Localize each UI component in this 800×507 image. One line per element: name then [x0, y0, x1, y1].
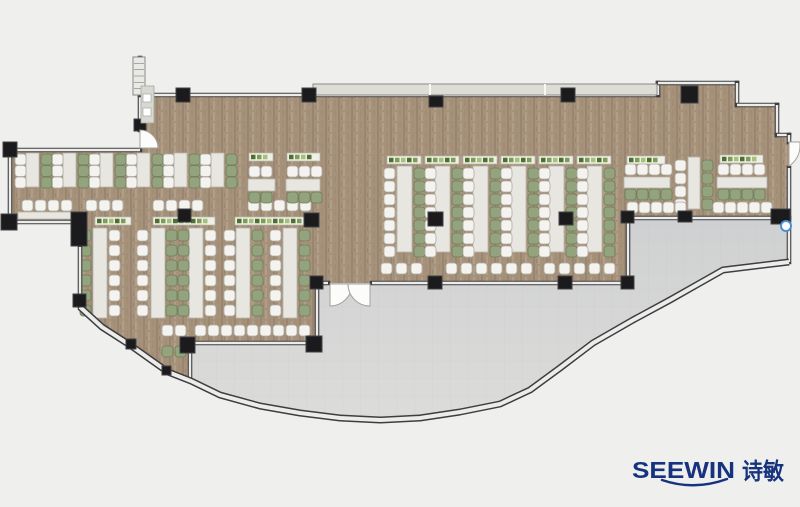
column — [180, 337, 195, 353]
column — [428, 212, 443, 226]
plant-icon — [301, 155, 306, 160]
chair — [381, 263, 392, 274]
chair — [730, 164, 741, 175]
chair-green — [528, 168, 539, 179]
chair-green — [252, 245, 263, 256]
chair-green — [649, 189, 660, 200]
chair — [384, 194, 395, 205]
table — [549, 166, 564, 252]
chair — [577, 246, 588, 257]
chair-green — [414, 207, 425, 218]
chair — [89, 166, 100, 177]
column — [304, 213, 319, 227]
plant-icon — [291, 219, 296, 224]
chair — [109, 230, 120, 241]
plant-icon — [279, 219, 284, 224]
chair — [166, 200, 177, 211]
chair-green — [528, 220, 539, 231]
chair — [137, 290, 148, 301]
chair-green — [490, 168, 501, 179]
chair-green — [661, 189, 672, 200]
panel-switch — [143, 94, 151, 102]
chair — [22, 200, 33, 211]
chair — [273, 325, 284, 336]
plant-icon — [249, 219, 254, 224]
chair — [221, 325, 232, 336]
plant-icon — [243, 219, 248, 224]
column — [3, 142, 17, 157]
chair-green — [252, 305, 263, 316]
plant-icon — [653, 158, 658, 163]
chair — [153, 200, 164, 211]
chair — [501, 246, 512, 257]
chair — [192, 200, 203, 211]
chair-green — [604, 168, 615, 179]
plant-icon — [413, 158, 418, 163]
chair-green — [452, 233, 463, 244]
chair — [109, 290, 120, 301]
chair — [718, 164, 729, 175]
table — [100, 153, 113, 187]
chair — [260, 325, 271, 336]
chair — [89, 154, 100, 165]
chair-green — [252, 260, 263, 271]
chair — [411, 263, 422, 274]
plant-icon — [197, 219, 202, 224]
column — [559, 212, 573, 225]
chair-green — [226, 166, 237, 177]
panel-switch — [143, 108, 151, 116]
chair — [15, 177, 26, 188]
chair-green — [490, 220, 501, 231]
chair — [539, 181, 550, 192]
plant-icon — [503, 158, 508, 163]
chair-green — [178, 290, 189, 301]
chair — [384, 220, 395, 231]
chair-green — [299, 192, 310, 203]
chair — [604, 263, 615, 274]
chair — [425, 194, 436, 205]
chair — [109, 260, 120, 271]
plant-icon — [635, 158, 640, 163]
table — [397, 166, 412, 252]
chair — [205, 245, 216, 256]
table — [236, 228, 250, 318]
floor-plan-svg: SEEWIN 诗敏 — [0, 0, 800, 507]
chair — [205, 305, 216, 316]
chair — [506, 263, 517, 274]
chair — [224, 305, 235, 316]
chair-green — [299, 290, 310, 301]
plant-icon — [103, 219, 108, 224]
chair — [126, 154, 137, 165]
service-panel — [141, 86, 154, 123]
chair — [224, 275, 235, 286]
plant-icon — [251, 155, 256, 160]
chair — [261, 166, 272, 177]
chair-green — [702, 199, 713, 210]
chair — [247, 325, 258, 336]
chair — [754, 164, 765, 175]
plant-icon — [389, 158, 394, 163]
table — [63, 153, 76, 187]
chair — [577, 220, 588, 231]
plant-icon — [263, 155, 268, 160]
chair-green — [189, 166, 200, 177]
chair-green — [299, 230, 310, 241]
plant-icon — [255, 219, 260, 224]
plant-icon — [483, 158, 488, 163]
plant-icon — [261, 219, 266, 224]
plant-icon — [445, 158, 450, 163]
plant-icon — [237, 219, 242, 224]
chair — [61, 200, 72, 211]
chair — [491, 263, 502, 274]
chair — [224, 245, 235, 256]
chair — [425, 233, 436, 244]
column — [176, 88, 190, 102]
plant-icon — [734, 157, 739, 162]
chair — [224, 290, 235, 301]
plant-icon — [647, 158, 652, 163]
chair-green — [299, 305, 310, 316]
chair — [311, 166, 322, 177]
plant-icon — [752, 157, 757, 162]
table — [283, 228, 297, 318]
chair-green — [566, 233, 577, 244]
chair-green — [742, 189, 753, 200]
plant-icon — [559, 158, 564, 163]
chair — [446, 263, 457, 274]
plant-icon — [740, 157, 745, 162]
chair — [299, 325, 310, 336]
chair — [200, 177, 211, 188]
column — [302, 88, 316, 102]
chair — [249, 166, 260, 177]
chair-green — [166, 275, 177, 286]
chair-green — [178, 305, 189, 316]
chair — [205, 260, 216, 271]
column — [71, 212, 87, 246]
plant-icon — [297, 219, 302, 224]
chair-green — [604, 246, 615, 257]
chair — [86, 200, 97, 211]
chair — [126, 177, 137, 188]
table — [211, 153, 224, 187]
chair — [577, 168, 588, 179]
column — [558, 276, 572, 289]
chair — [274, 200, 285, 211]
chair-green — [452, 207, 463, 218]
chair — [205, 290, 216, 301]
plant-icon — [289, 155, 294, 160]
chair — [501, 181, 512, 192]
chair-green — [490, 233, 501, 244]
chair — [463, 246, 474, 257]
chair — [737, 202, 748, 213]
plant-icon — [433, 158, 438, 163]
chair-green — [115, 166, 126, 177]
chair-green — [115, 177, 126, 188]
plant-icon — [109, 219, 114, 224]
chair — [175, 325, 186, 336]
chair — [463, 194, 474, 205]
chair — [559, 263, 570, 274]
chair — [15, 166, 26, 177]
table — [688, 157, 700, 209]
chair-green — [41, 154, 52, 165]
chair — [463, 207, 474, 218]
chair-green — [490, 194, 501, 205]
chair — [384, 233, 395, 244]
chair-green — [604, 220, 615, 231]
chair — [205, 275, 216, 286]
logo-latin-text: SEEWIN — [632, 457, 735, 483]
chair — [476, 263, 487, 274]
chair-green — [566, 181, 577, 192]
plant-icon — [267, 219, 272, 224]
column — [310, 276, 323, 289]
chair-green — [249, 192, 260, 203]
chair — [286, 325, 297, 336]
column — [621, 276, 634, 289]
fixture-marker-icon — [781, 221, 791, 231]
plant-icon — [439, 158, 444, 163]
plant-icon — [597, 158, 602, 163]
chair-green — [41, 177, 52, 188]
chair — [577, 181, 588, 192]
chair — [501, 233, 512, 244]
chair — [270, 230, 281, 241]
chair-green — [166, 245, 177, 256]
chair-green — [311, 192, 322, 203]
chair — [651, 202, 662, 213]
floorplan-canvas: SEEWIN 诗敏 — [0, 0, 800, 507]
chair — [137, 245, 148, 256]
plant-icon — [565, 158, 570, 163]
chair — [109, 245, 120, 256]
chair — [126, 166, 137, 177]
chair-green — [604, 207, 615, 218]
column — [561, 88, 575, 102]
chair — [589, 263, 600, 274]
chair — [501, 168, 512, 179]
column — [306, 336, 322, 352]
chair — [663, 202, 674, 213]
chair — [287, 166, 298, 177]
plant-icon — [509, 158, 514, 163]
chair-green — [178, 245, 189, 256]
chair — [639, 202, 650, 213]
plant-icon — [191, 219, 196, 224]
chair — [137, 230, 148, 241]
chair-green — [226, 154, 237, 165]
plant-icon — [515, 158, 520, 163]
plant-icon — [541, 158, 546, 163]
chair-green — [637, 189, 648, 200]
chair — [625, 164, 636, 175]
chair — [48, 200, 59, 211]
chair — [35, 200, 46, 211]
chair — [675, 160, 686, 171]
plant-icon — [167, 219, 172, 224]
chair — [163, 177, 174, 188]
chair-green — [528, 194, 539, 205]
plant-icon — [407, 158, 412, 163]
table — [137, 153, 150, 187]
chair-green — [566, 168, 577, 179]
table — [717, 177, 767, 188]
door — [789, 142, 800, 166]
chair — [384, 181, 395, 192]
plant-icon — [746, 157, 751, 162]
chair — [713, 202, 724, 213]
plant-icon — [465, 158, 470, 163]
chair-green — [78, 177, 89, 188]
chair — [742, 164, 753, 175]
chair-green — [528, 207, 539, 218]
table — [587, 166, 602, 252]
table — [435, 166, 450, 252]
table — [151, 228, 165, 318]
chair-green — [566, 194, 577, 205]
chair — [200, 166, 211, 177]
chair — [461, 263, 472, 274]
chair-green — [414, 220, 425, 231]
column — [1, 214, 17, 230]
plant-icon — [579, 158, 584, 163]
chair — [270, 305, 281, 316]
chair-green — [152, 166, 163, 177]
chair-green — [702, 173, 713, 184]
chair — [270, 260, 281, 271]
chair-green — [252, 230, 263, 241]
table — [511, 166, 526, 252]
column — [126, 339, 136, 349]
plant-icon — [547, 158, 552, 163]
plant-icon — [161, 219, 166, 224]
column — [678, 211, 692, 222]
column — [178, 209, 191, 222]
chair-green — [452, 168, 463, 179]
chair — [99, 200, 110, 211]
chair — [501, 207, 512, 218]
chair — [539, 220, 550, 231]
chair — [463, 168, 474, 179]
plant-icon — [585, 158, 590, 163]
table — [26, 153, 39, 187]
chair-green — [718, 189, 729, 200]
plant-icon — [401, 158, 406, 163]
plant-icon — [427, 158, 432, 163]
plant-icon — [395, 158, 400, 163]
table — [473, 166, 488, 252]
chair-green — [166, 260, 177, 271]
chair-green — [414, 233, 425, 244]
chair — [539, 194, 550, 205]
chair-green — [490, 246, 501, 257]
table — [286, 179, 320, 191]
chair-green — [528, 181, 539, 192]
chair-green — [226, 177, 237, 188]
chair — [521, 263, 532, 274]
chair-green — [528, 246, 539, 257]
column — [681, 86, 698, 103]
chair — [137, 275, 148, 286]
chair — [577, 207, 588, 218]
plant-icon — [285, 219, 290, 224]
chair-green — [115, 154, 126, 165]
chair-green — [452, 246, 463, 257]
plant-icon — [641, 158, 646, 163]
plant-icon — [173, 219, 178, 224]
chair — [637, 164, 648, 175]
plant-icon — [203, 219, 208, 224]
chair — [463, 181, 474, 192]
chair — [463, 233, 474, 244]
chair — [425, 168, 436, 179]
chair-green — [178, 275, 189, 286]
chair — [539, 233, 550, 244]
chair-green — [166, 230, 177, 241]
chair-green — [252, 275, 263, 286]
chair-green — [604, 233, 615, 244]
table — [248, 179, 275, 191]
plant-icon — [477, 158, 482, 163]
column — [621, 211, 634, 223]
chair-green — [625, 189, 636, 200]
chair — [137, 260, 148, 271]
chair — [675, 186, 686, 197]
chair-green — [299, 260, 310, 271]
chair-green — [152, 177, 163, 188]
chair — [109, 275, 120, 286]
chair-green — [78, 166, 89, 177]
plant-icon — [121, 219, 126, 224]
chair — [577, 233, 588, 244]
chair — [52, 166, 63, 177]
chair — [162, 325, 173, 336]
chair — [501, 220, 512, 231]
chair — [384, 168, 395, 179]
table — [174, 153, 187, 187]
chair-green — [730, 189, 741, 200]
chair — [425, 181, 436, 192]
chair — [463, 220, 474, 231]
chair — [234, 325, 245, 336]
chair — [89, 177, 100, 188]
plant-icon — [295, 155, 300, 160]
chair — [163, 166, 174, 177]
plant-icon — [527, 158, 532, 163]
chair-green — [261, 192, 272, 203]
chair — [163, 154, 174, 165]
chair-green — [414, 194, 425, 205]
chair-green — [452, 194, 463, 205]
chair — [749, 202, 760, 213]
chair-green — [452, 220, 463, 231]
chair — [270, 290, 281, 301]
chair-green — [702, 186, 713, 197]
plant-icon — [307, 155, 312, 160]
chair — [224, 260, 235, 271]
plant-icon — [489, 158, 494, 163]
plant-icon — [273, 219, 278, 224]
plant-icon — [722, 157, 727, 162]
chair — [270, 275, 281, 286]
chair-green — [490, 181, 501, 192]
plant-icon — [591, 158, 596, 163]
